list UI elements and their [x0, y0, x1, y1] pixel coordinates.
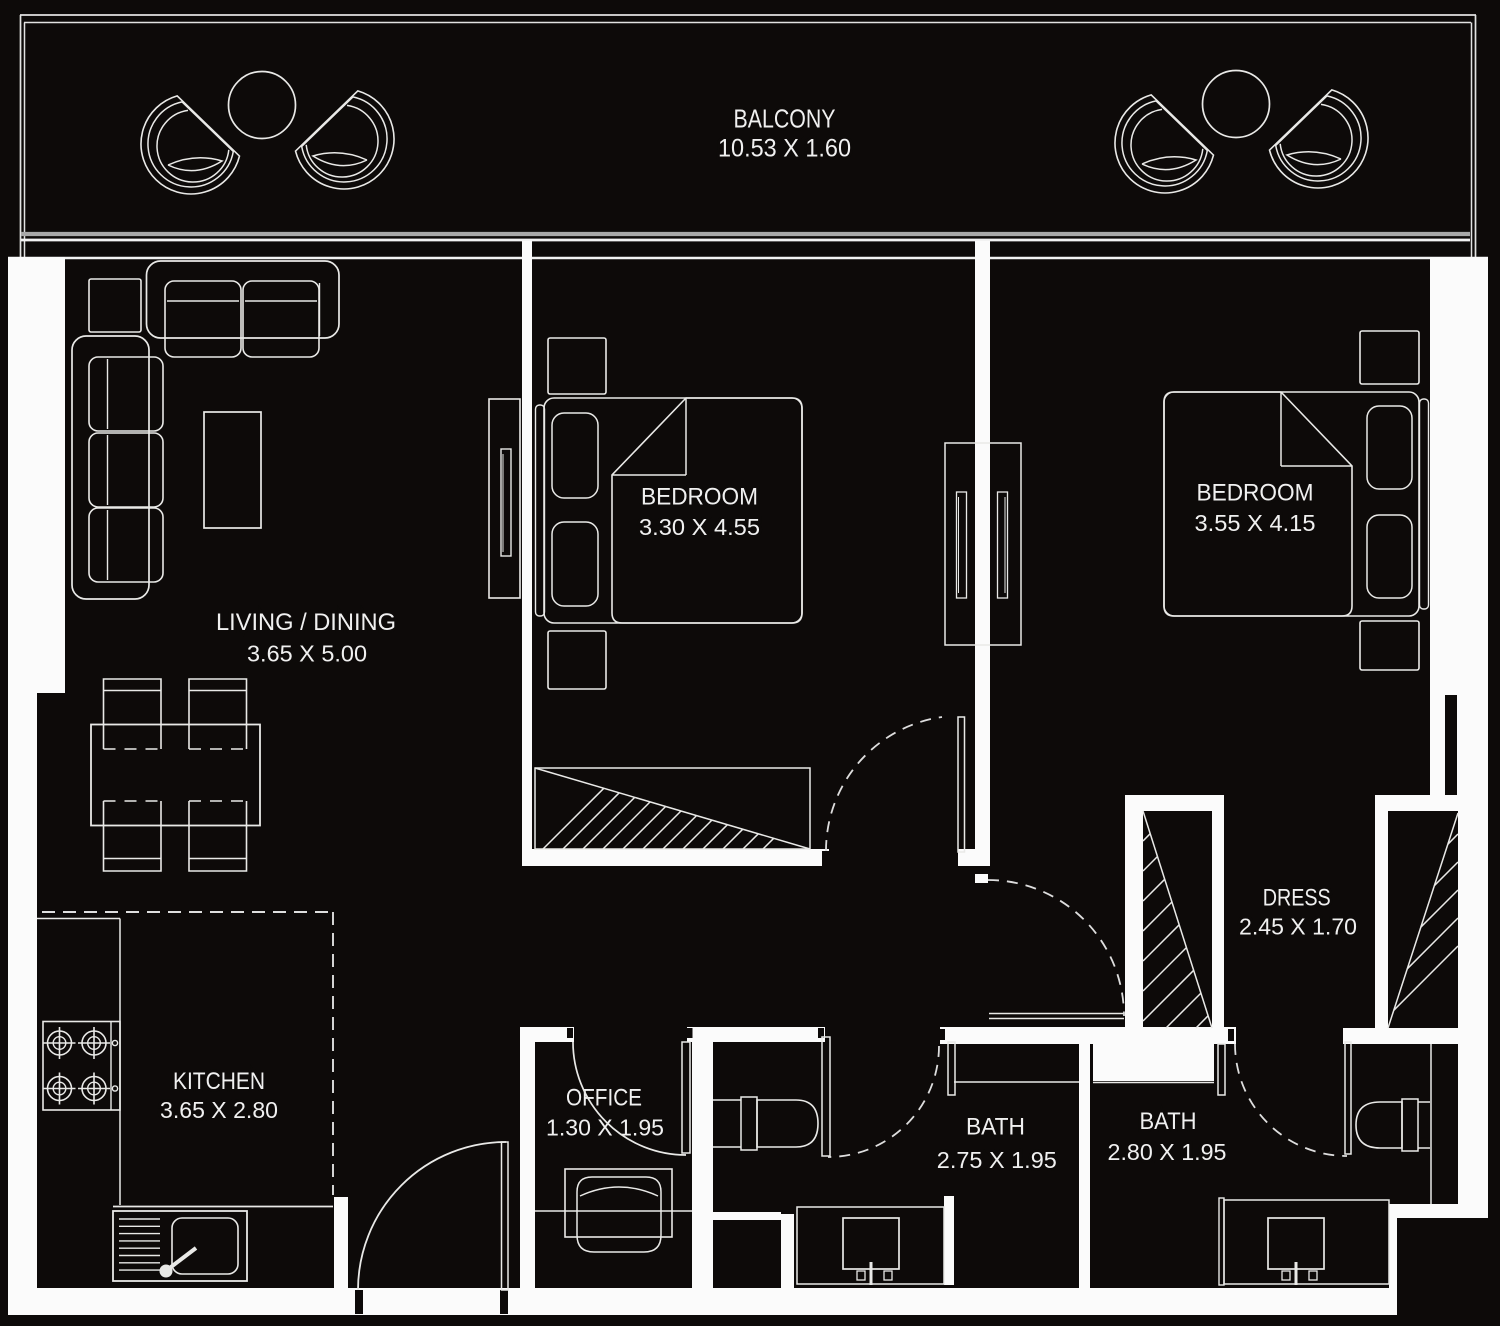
- svg-text:2.75 X 1.95: 2.75 X 1.95: [937, 1147, 1057, 1173]
- svg-text:3.65 X 2.80: 3.65 X 2.80: [160, 1097, 278, 1123]
- svg-text:BALCONY: BALCONY: [734, 106, 836, 134]
- svg-text:2.45 X 1.70: 2.45 X 1.70: [1239, 914, 1357, 940]
- svg-text:BEDROOM: BEDROOM: [1197, 481, 1314, 507]
- svg-text:DRESS: DRESS: [1263, 885, 1331, 911]
- svg-text:BATH: BATH: [966, 1114, 1025, 1140]
- svg-text:2.80 X 1.95: 2.80 X 1.95: [1108, 1139, 1227, 1165]
- svg-text:3.65 X 5.00: 3.65 X 5.00: [247, 641, 367, 667]
- svg-text:1.30 X 1.95: 1.30 X 1.95: [546, 1114, 664, 1140]
- svg-text:BEDROOM: BEDROOM: [641, 484, 758, 510]
- svg-text:10.53 X 1.60: 10.53 X 1.60: [718, 136, 851, 163]
- svg-text:OFFICE: OFFICE: [566, 1085, 642, 1111]
- svg-text:KITCHEN: KITCHEN: [173, 1069, 265, 1095]
- svg-text:LIVING / DINING: LIVING / DINING: [216, 609, 396, 636]
- svg-text:3.30 X 4.55: 3.30 X 4.55: [639, 514, 760, 540]
- svg-text:BATH: BATH: [1140, 1109, 1197, 1135]
- svg-text:3.55 X 4.15: 3.55 X 4.15: [1195, 510, 1316, 536]
